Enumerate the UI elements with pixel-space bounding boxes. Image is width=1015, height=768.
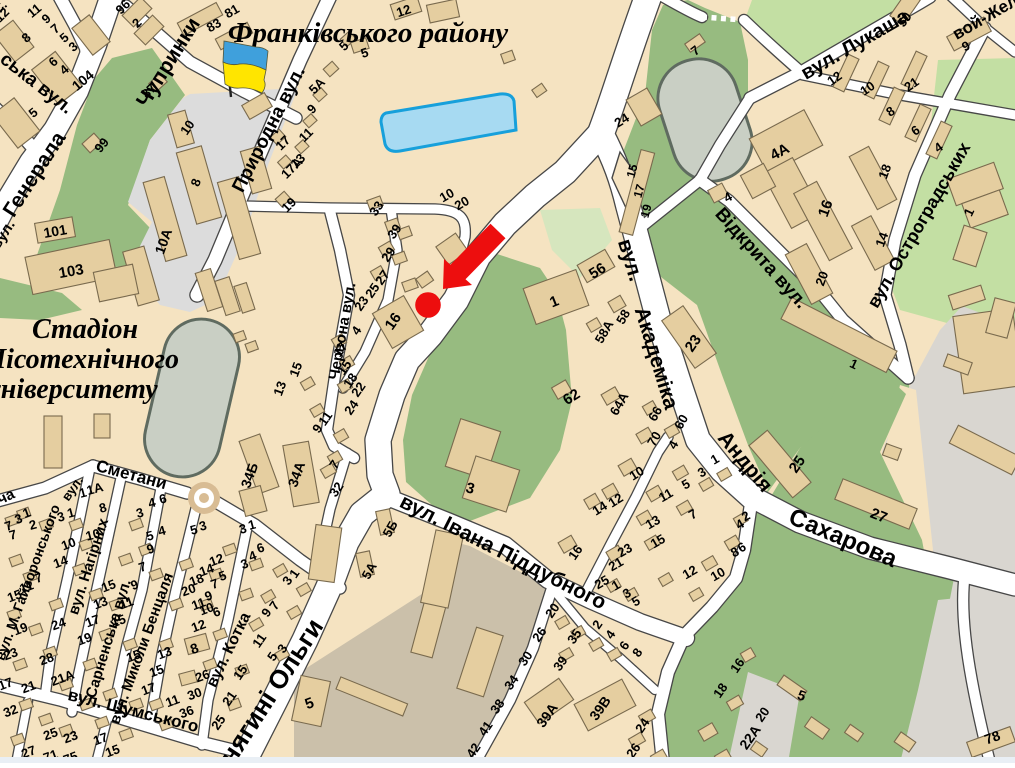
svg-text:університету: університету xyxy=(0,374,158,405)
svg-text:Стадіон: Стадіон xyxy=(32,314,138,345)
svg-text:Франківського району: Франківського району xyxy=(228,17,508,49)
svg-text:Лісотехнічного: Лісотехнічного xyxy=(0,344,179,375)
